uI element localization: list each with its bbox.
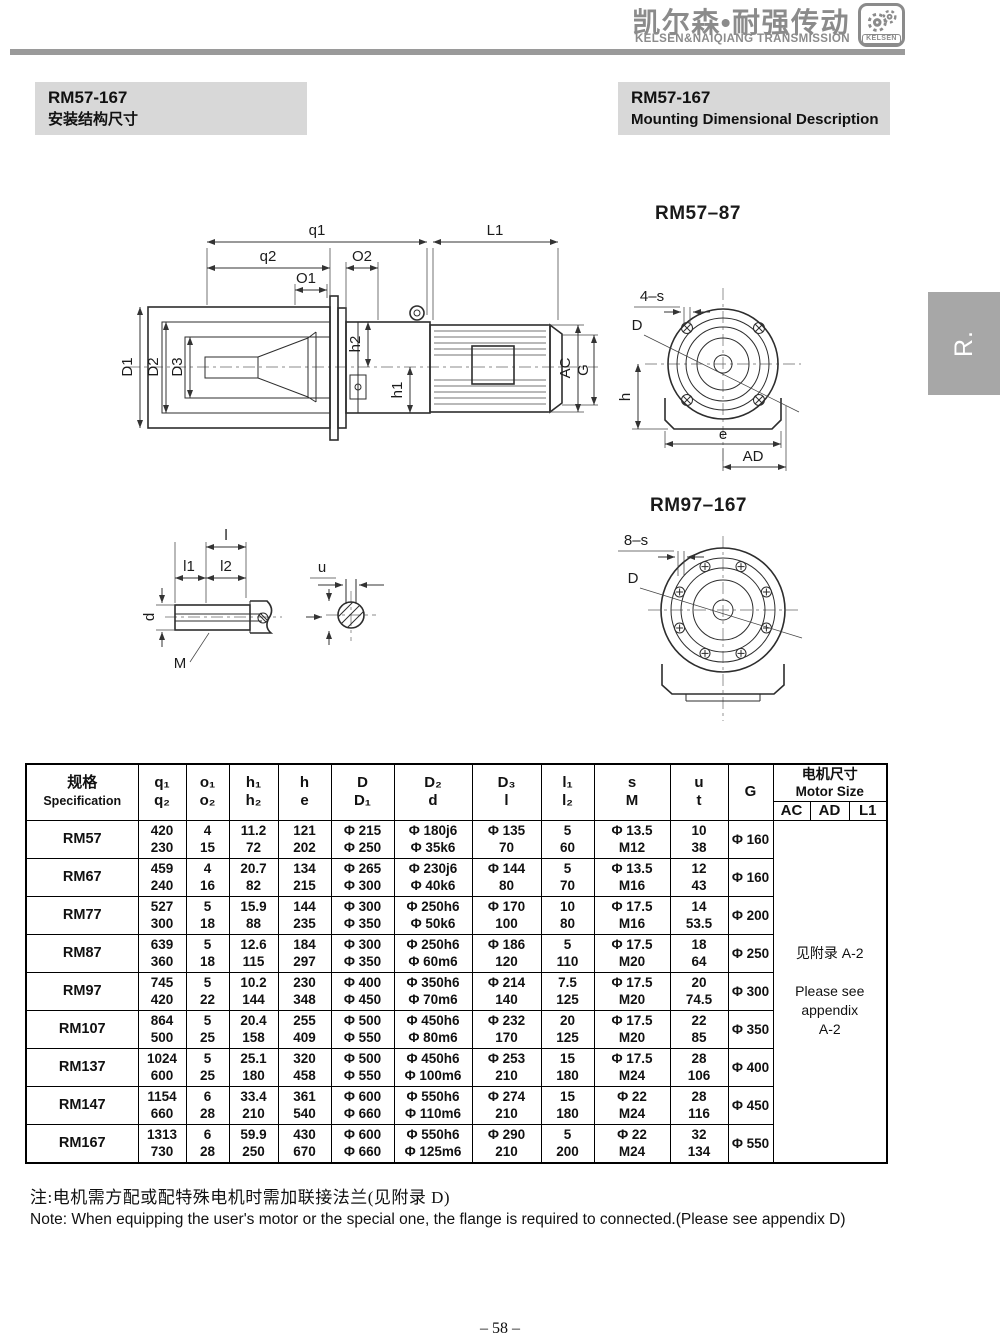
table-cell: Φ 13.5M12 <box>594 820 670 858</box>
table-row: RM7752730051815.988144235Φ 300Φ 350Φ 250… <box>26 896 887 934</box>
table-cell: 11.272 <box>229 820 278 858</box>
table-cell: Φ 400 <box>728 1048 773 1086</box>
dim-label-q1: q1 <box>309 222 326 239</box>
col-header-l1l2: l₁l₂ <box>541 764 594 820</box>
dim-label-D: D <box>628 570 639 587</box>
side-view-drawing: q1 L1 q2 O2 O1 D1 D2 D3 h2 h1 AC G <box>100 210 600 470</box>
table-cell: 1313730 <box>138 1124 186 1163</box>
table-cell: Φ 160 <box>728 820 773 858</box>
flange-view-8-hole: 8–s D <box>590 518 880 748</box>
title-subtitle-en: Mounting Dimensional Description <box>631 108 890 131</box>
table-cell: 28116 <box>670 1086 728 1124</box>
table-cell: 361540 <box>278 1086 331 1124</box>
table-cell: 518 <box>186 896 229 934</box>
dim-label-l1: l1 <box>183 558 195 575</box>
table-cell: RM107 <box>26 1010 138 1048</box>
title-block-cn: RM57-167 安装结构尺寸 <box>35 82 307 135</box>
table-cell: 525 <box>186 1010 229 1048</box>
table-cell: Φ 17.5M20 <box>594 934 670 972</box>
table-row: RM5742023041511.272121202Φ 215Φ 250Φ 180… <box>26 820 887 858</box>
table-cell: Φ 22M24 <box>594 1086 670 1124</box>
col-header-D2d: D₂d <box>394 764 472 820</box>
table-cell: Φ 14480 <box>472 858 541 896</box>
table-cell: Φ 300Φ 350 <box>331 934 394 972</box>
dim-label-e: e <box>719 426 727 443</box>
logo-word: KELSEN <box>862 34 901 44</box>
col-header-q: q₁q₂ <box>138 764 186 820</box>
table-cell: 459240 <box>138 858 186 896</box>
table-cell: 1038 <box>670 820 728 858</box>
col-header-AD: AD <box>810 801 849 820</box>
dim-label-D2: D2 <box>145 357 162 376</box>
table-cell: 864500 <box>138 1010 186 1048</box>
col-header-sM: sM <box>594 764 670 820</box>
table-cell: Φ 250h6Φ 50k6 <box>394 896 472 934</box>
dim-label-h: h <box>617 393 634 401</box>
table-cell: 570 <box>541 858 594 896</box>
table-cell: RM67 <box>26 858 138 896</box>
footnote-en: Note: When equipping the user's motor or… <box>30 1211 845 1229</box>
table-cell: Φ 450h6Φ 100m6 <box>394 1048 472 1086</box>
dimension-table: 规格 Specification q₁q₂ o₁o₂ h₁h₂ he DD₁ <box>25 763 888 1164</box>
table-cell: 15180 <box>541 1048 594 1086</box>
table-cell: RM77 <box>26 896 138 934</box>
page-number: – 58 – <box>0 1320 1000 1338</box>
kelsen-logo: KELSEN <box>858 3 905 47</box>
table-cell: 1154660 <box>138 1086 186 1124</box>
col-header-motor-size: 电机尺寸 Motor Size <box>773 764 887 801</box>
dim-label-q2: q2 <box>260 248 277 265</box>
table-cell: Φ 200 <box>728 896 773 934</box>
gear-icon <box>863 8 901 34</box>
table-cell: 745420 <box>138 972 186 1010</box>
table-cell: 20.782 <box>229 858 278 896</box>
table-cell: Φ 300Φ 350 <box>331 896 394 934</box>
appendix-note: 见附录 A-2Please seeappendixA-2 <box>773 820 887 1163</box>
figure-title-rm97-167: RM97–167 <box>650 495 747 517</box>
table-cell: 15180 <box>541 1086 594 1124</box>
table-cell: 5110 <box>541 934 594 972</box>
table-cell: 134215 <box>278 858 331 896</box>
table-cell: 639360 <box>138 934 186 972</box>
table-cell: 59.9250 <box>229 1124 278 1163</box>
table-row: RM137102460052525.1180320458Φ 500Φ 550Φ … <box>26 1048 887 1086</box>
table-cell: Φ 300 <box>728 972 773 1010</box>
table-cell: Φ 350 <box>728 1010 773 1048</box>
table-cell: Φ 232170 <box>472 1010 541 1048</box>
catalog-page: 凯尔森•耐强传动 KELSEN&NAIQIANG TRANSMISSION KE… <box>0 0 1000 1342</box>
table-cell: Φ 215Φ 250 <box>331 820 394 858</box>
table-cell: 525 <box>186 1048 229 1086</box>
table-cell: Φ 600Φ 660 <box>331 1086 394 1124</box>
col-header-AC: AC <box>773 801 810 820</box>
table-row: RM9774542052210.2144230348Φ 400Φ 450Φ 35… <box>26 972 887 1010</box>
table-cell: Φ 500Φ 550 <box>331 1048 394 1086</box>
table-row: RM10786450052520.4158255409Φ 500Φ 550Φ 4… <box>26 1010 887 1048</box>
col-header-L1: L1 <box>849 801 887 820</box>
table-cell: 230348 <box>278 972 331 1010</box>
dim-label-O2: O2 <box>352 248 372 265</box>
table-cell: Φ 253210 <box>472 1048 541 1086</box>
table-cell: 184297 <box>278 934 331 972</box>
table-cell: 255409 <box>278 1010 331 1048</box>
table-cell: 415 <box>186 820 229 858</box>
table-cell: Φ 170100 <box>472 896 541 934</box>
table-cell: Φ 17.5M16 <box>594 896 670 934</box>
dim-label-l2: l2 <box>220 558 232 575</box>
table-cell: Φ 274210 <box>472 1086 541 1124</box>
table-cell: Φ 180j6Φ 35k6 <box>394 820 472 858</box>
figure-title-rm57-87: RM57–87 <box>655 203 741 225</box>
table-cell: 5200 <box>541 1124 594 1163</box>
title-block-en: RM57-167 Mounting Dimensional Descriptio… <box>618 82 890 135</box>
table-cell: RM167 <box>26 1124 138 1163</box>
spec-table-body: RM5742023041511.272121202Φ 215Φ 250Φ 180… <box>26 820 887 1163</box>
table-cell: 416 <box>186 858 229 896</box>
dim-label-O1: O1 <box>296 270 316 287</box>
col-header-ut: ut <box>670 764 728 820</box>
table-cell: Φ 250 <box>728 934 773 972</box>
footnote-cn: 注:电机需方配或配特殊电机时需加联接法兰(见附录 D) <box>30 1183 450 1208</box>
section-tab-r: R. <box>928 292 1000 395</box>
table-cell: Φ 22M24 <box>594 1124 670 1163</box>
col-header-D3l: D₃l <box>472 764 541 820</box>
table-cell: Φ 550h6Φ 110m6 <box>394 1086 472 1124</box>
table-cell: Φ 550 <box>728 1124 773 1163</box>
dim-label-D1: D1 <box>119 357 136 376</box>
col-header-D: DD₁ <box>331 764 394 820</box>
table-cell: RM97 <box>26 972 138 1010</box>
header-rule <box>10 49 905 55</box>
table-cell: 15.988 <box>229 896 278 934</box>
table-row: RM167131373062859.9250430670Φ 600Φ 660Φ … <box>26 1124 887 1163</box>
table-cell: 1864 <box>670 934 728 972</box>
table-cell: RM137 <box>26 1048 138 1086</box>
section-tab-label: R. <box>950 330 979 357</box>
model-range: RM57-167 <box>631 87 890 108</box>
table-cell: 320458 <box>278 1048 331 1086</box>
dim-label-l: l <box>224 527 227 544</box>
table-cell: Φ 450h6Φ 80m6 <box>394 1010 472 1048</box>
col-header-o: o₁o₂ <box>186 764 229 820</box>
table-cell: Φ 400Φ 450 <box>331 972 394 1010</box>
table-cell: 25.1180 <box>229 1048 278 1086</box>
table-cell: 1080 <box>541 896 594 934</box>
table-row: RM6745924041620.782134215Φ 265Φ 300Φ 230… <box>26 858 887 896</box>
table-row: RM8763936051812.6115184297Φ 300Φ 350Φ 25… <box>26 934 887 972</box>
table-cell: Φ 450 <box>728 1086 773 1124</box>
title-subtitle-cn: 安装结构尺寸 <box>48 108 307 131</box>
spec-header-cn: 规格 <box>27 774 138 792</box>
table-cell: 527300 <box>138 896 186 934</box>
table-cell: 560 <box>541 820 594 858</box>
table-cell: Φ 214140 <box>472 972 541 1010</box>
table-cell: 430670 <box>278 1124 331 1163</box>
table-cell: 28106 <box>670 1048 728 1086</box>
dim-label-AD: AD <box>743 448 764 465</box>
brand-title-en: KELSEN&NAIQIANG TRANSMISSION <box>635 33 850 45</box>
dim-label-d: d <box>141 613 158 621</box>
table-cell: 628 <box>186 1086 229 1124</box>
col-header-he: he <box>278 764 331 820</box>
table-cell: Φ 160 <box>728 858 773 896</box>
bolt-count-label: 8–s <box>624 532 648 549</box>
col-header-spec: 规格 Specification <box>26 764 138 820</box>
dim-label-D: D <box>632 317 643 334</box>
table-cell: Φ 17.5M20 <box>594 972 670 1010</box>
table-cell: 20125 <box>541 1010 594 1048</box>
table-cell: Φ 17.5M20 <box>594 1010 670 1048</box>
table-cell: 20.4158 <box>229 1010 278 1048</box>
table-cell: 522 <box>186 972 229 1010</box>
motor-header-en: Motor Size <box>774 783 887 800</box>
table-cell: 1024600 <box>138 1048 186 1086</box>
col-header-G: G <box>728 764 773 820</box>
table-cell: 518 <box>186 934 229 972</box>
table-cell: 1453.5 <box>670 896 728 934</box>
table-cell: 121202 <box>278 820 331 858</box>
motor-header-cn: 电机尺寸 <box>774 766 887 783</box>
spec-header-en: Specification <box>27 792 138 810</box>
table-cell: Φ 550h6Φ 125m6 <box>394 1124 472 1163</box>
dim-label-D3: D3 <box>169 357 186 376</box>
table-cell: 144235 <box>278 896 331 934</box>
table-cell: 1243 <box>670 858 728 896</box>
table-cell: 10.2144 <box>229 972 278 1010</box>
table-cell: RM87 <box>26 934 138 972</box>
dim-label-L1: L1 <box>487 222 504 239</box>
table-cell: Φ 13570 <box>472 820 541 858</box>
table-cell: Φ 17.5M24 <box>594 1048 670 1086</box>
bolt-count-label: 4–s <box>640 288 664 305</box>
model-range: RM57-167 <box>48 87 307 108</box>
shaft-detail-drawing: l l1 l2 d M <box>110 515 470 705</box>
table-cell: 12.6115 <box>229 934 278 972</box>
flange-view-4-hole: 4–s D h e AD <box>590 230 880 480</box>
table-cell: Φ 250h6Φ 60m6 <box>394 934 472 972</box>
table-cell: RM147 <box>26 1086 138 1124</box>
table-cell: 7.5125 <box>541 972 594 1010</box>
dim-label-M: M <box>174 655 187 672</box>
table-cell: 420230 <box>138 820 186 858</box>
dim-label-h1: h1 <box>389 382 406 399</box>
col-header-h1h2: h₁h₂ <box>229 764 278 820</box>
table-cell: Φ 350h6Φ 70m6 <box>394 972 472 1010</box>
table-cell: 32134 <box>670 1124 728 1163</box>
table-row: RM147115466062833.4210361540Φ 600Φ 660Φ … <box>26 1086 887 1124</box>
table-cell: 33.4210 <box>229 1086 278 1124</box>
table-cell: Φ 230j6Φ 40k6 <box>394 858 472 896</box>
table-cell: Φ 13.5M16 <box>594 858 670 896</box>
table-cell: 2285 <box>670 1010 728 1048</box>
table-cell: 2074.5 <box>670 972 728 1010</box>
table-cell: Φ 500Φ 550 <box>331 1010 394 1048</box>
table-cell: 628 <box>186 1124 229 1163</box>
dim-label-u: u <box>318 559 326 576</box>
table-cell: RM57 <box>26 820 138 858</box>
table-cell: Φ 290210 <box>472 1124 541 1163</box>
table-cell: Φ 600Φ 660 <box>331 1124 394 1163</box>
table-cell: Φ 265Φ 300 <box>331 858 394 896</box>
dim-label-h2: h2 <box>347 336 364 353</box>
dim-label-AC: AC <box>557 357 574 378</box>
table-cell: Φ 186120 <box>472 934 541 972</box>
